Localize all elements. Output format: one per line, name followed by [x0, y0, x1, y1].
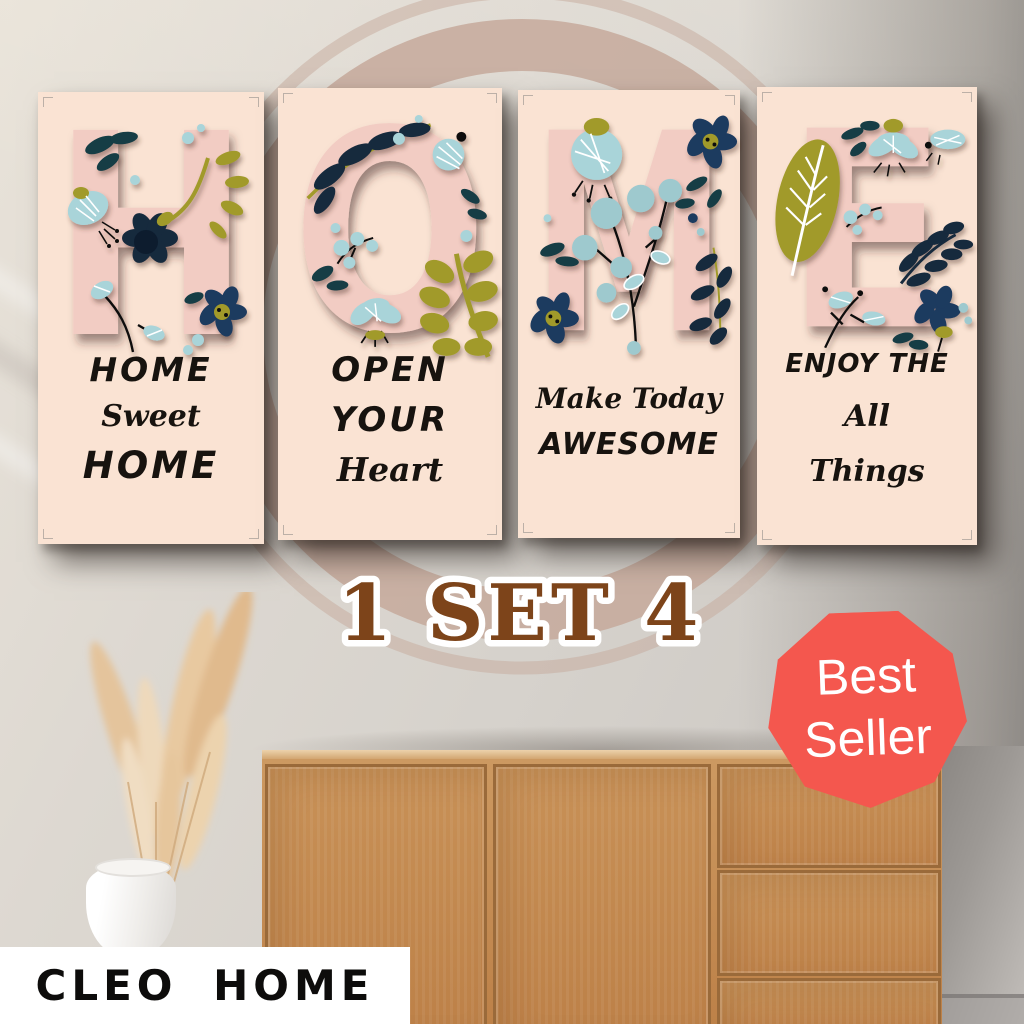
badge-line-2: Seller [803, 708, 933, 768]
corner-mark [523, 523, 533, 533]
corner-mark [249, 529, 259, 539]
quote-line: HOME [83, 444, 220, 487]
product-photo: H [0, 0, 1024, 1024]
quote-line: Sweet [101, 399, 201, 434]
floral-letter-h: H [38, 100, 264, 362]
floral-letter-m: M [518, 98, 740, 360]
cabinet-drawer-3 [717, 978, 941, 1024]
vase [86, 864, 176, 956]
quote-line: Things [809, 454, 924, 489]
corner-mark [762, 530, 772, 540]
quote-line: HOME [89, 350, 212, 389]
quote-line: ENJOY THE [785, 349, 949, 379]
wall-right-of-cabinet [942, 746, 1024, 1024]
svg-text:1 SET 4: 1 SET 4 [338, 568, 703, 659]
cabinet-drawer-2 [717, 870, 941, 976]
panel-quote: OPEN YOUR Heart [278, 350, 502, 489]
panel-letter-m: M [518, 90, 740, 538]
floral-letter-o: O [278, 96, 502, 358]
corner-mark [43, 529, 53, 539]
panel-letter-e: E [757, 87, 977, 545]
badge-line-1: Best [815, 646, 917, 705]
panel-quote: Make Today AWESOME [518, 382, 740, 462]
brand-name: CLEO HOME [36, 961, 375, 1010]
panel-quote: HOME Sweet HOME [38, 350, 264, 487]
quote-line: Heart [337, 450, 443, 489]
panel-letter-h: H [38, 92, 264, 544]
corner-mark [283, 525, 293, 535]
quote-line: Make Today [536, 382, 722, 415]
corner-mark [487, 525, 497, 535]
floral-letter-e: E [757, 95, 977, 357]
set-label: 1 SET 4 [330, 556, 710, 676]
brand-bar: CLEO HOME [0, 947, 410, 1024]
quote-line: All [844, 399, 890, 434]
quote-line: OPEN [331, 350, 449, 390]
quote-line: AWESOME [539, 427, 719, 462]
corner-mark [725, 523, 735, 533]
panel-quote: ENJOY THE All Things [757, 349, 977, 489]
cabinet-door-right [493, 764, 711, 1024]
panel-letter-o: O [278, 88, 502, 540]
quote-line: YOUR [331, 400, 449, 440]
corner-mark [962, 530, 972, 540]
floor-strip [942, 998, 1024, 1024]
